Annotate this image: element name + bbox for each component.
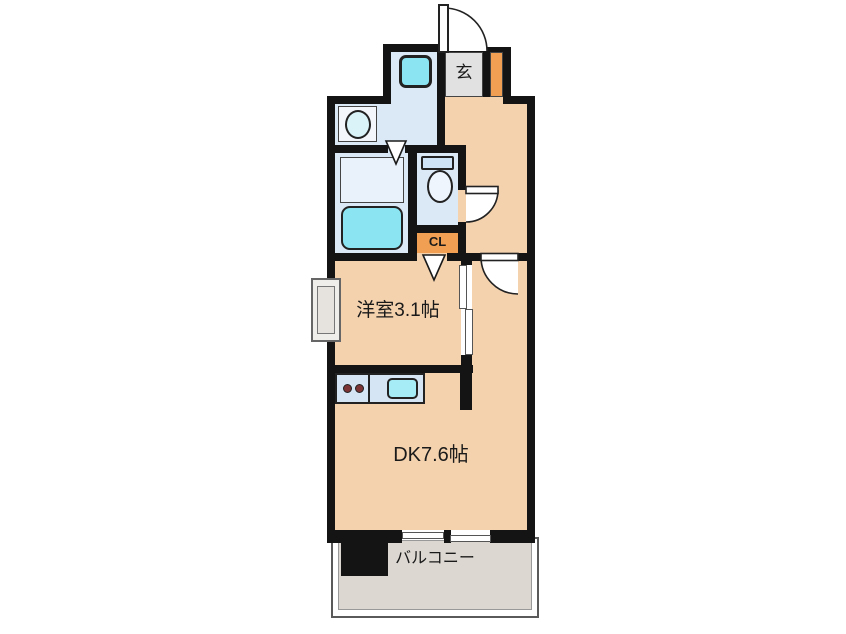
wall (490, 530, 535, 543)
stove-burner (355, 384, 364, 393)
wall (327, 145, 388, 153)
entrance-door-swing (444, 8, 487, 51)
wall (483, 52, 490, 97)
wall (405, 145, 466, 153)
closet-label: CL (417, 235, 458, 249)
wall (383, 44, 445, 52)
wall (460, 365, 472, 410)
shower-area (340, 157, 404, 203)
closet-door-gap (417, 253, 447, 261)
dk-label: DK7.6帖 (335, 444, 527, 466)
wall (408, 153, 417, 253)
western-room-label: 洋室3.1帖 (335, 301, 461, 322)
wall (518, 253, 535, 261)
toilet-tank (421, 156, 454, 170)
wall (461, 253, 472, 265)
wall (327, 253, 417, 261)
wall (408, 225, 466, 233)
bathtub (341, 206, 403, 250)
shoe-cabinet (490, 52, 503, 97)
washing-machine (399, 55, 432, 88)
wall (458, 145, 466, 190)
kitchen-counter-divider (368, 374, 370, 403)
wall-lintel (445, 47, 511, 52)
kitchen-sink (387, 378, 418, 399)
floor-plan: 玄 CL 洋室3.1帖 DK7.6帖 バルコニー (0, 0, 846, 634)
lavatory-sink (345, 110, 371, 139)
wall (503, 47, 511, 102)
wall (527, 96, 535, 537)
wall (437, 44, 445, 153)
sliding-window (450, 535, 491, 542)
sliding-door (465, 309, 473, 355)
balcony-label: バルコニー (380, 550, 490, 568)
entrance-door-arc (444, 8, 487, 51)
wall (327, 96, 391, 104)
wall (327, 365, 473, 373)
meter-box-inner (317, 286, 335, 334)
wall (383, 44, 391, 104)
stove-burner (343, 384, 352, 393)
toilet-bowl (427, 170, 453, 203)
genkan-label: 玄 (450, 64, 478, 83)
sliding-window (402, 532, 444, 539)
room-dk-corridor (472, 261, 527, 373)
